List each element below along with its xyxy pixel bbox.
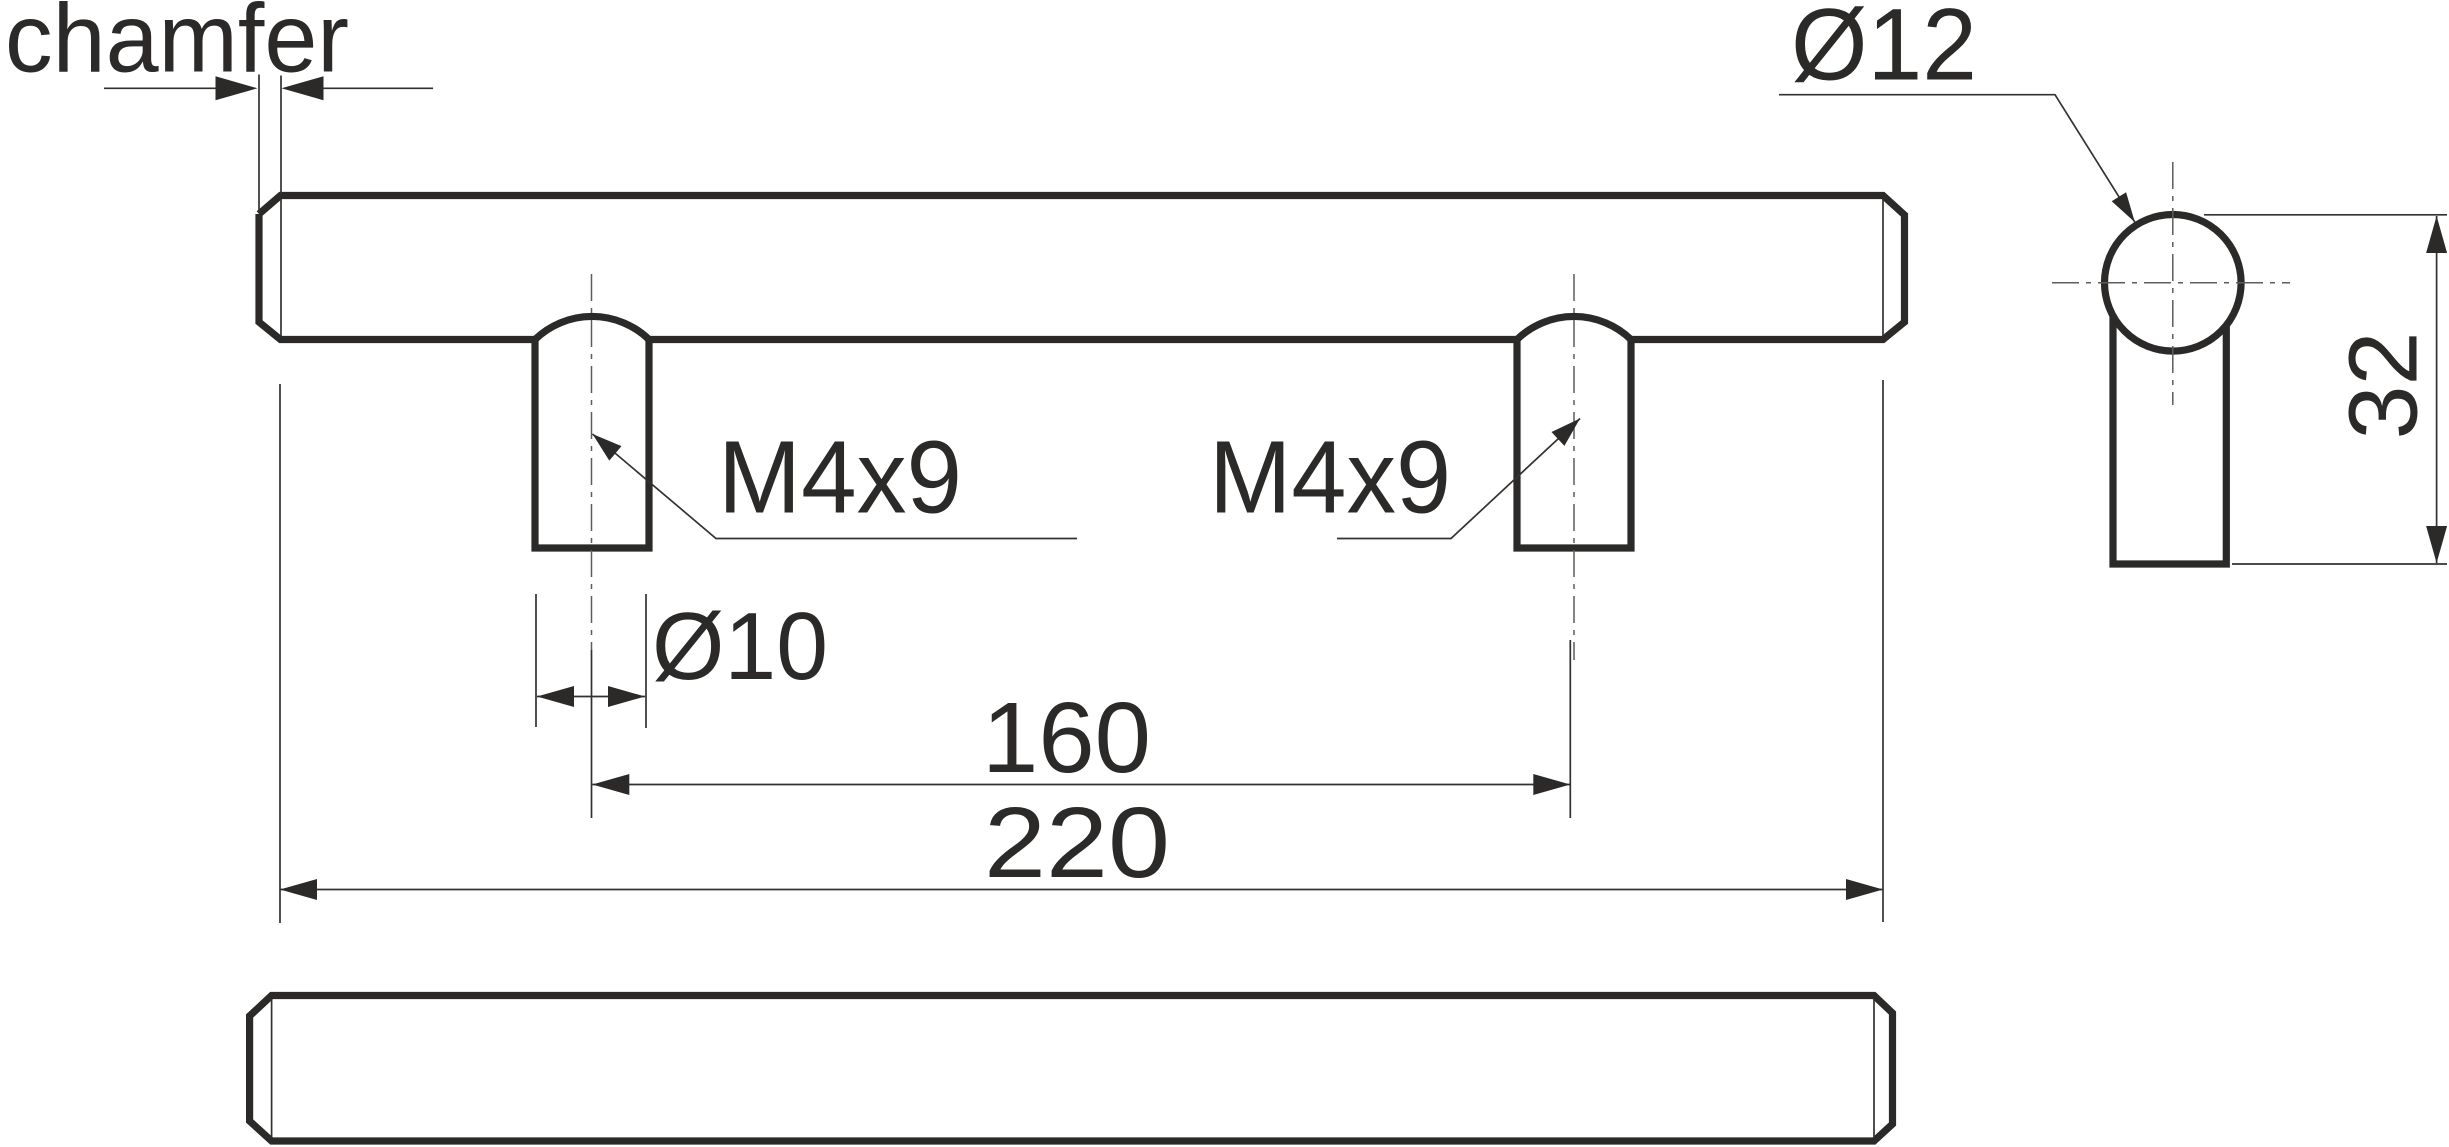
svg-text:Ø12: Ø12 xyxy=(1791,0,1977,102)
svg-text:Ø10: Ø10 xyxy=(652,593,828,700)
svg-text:32: 32 xyxy=(2329,332,2438,440)
svg-text:160: 160 xyxy=(982,682,1151,794)
svg-text:M4x9: M4x9 xyxy=(718,420,962,535)
svg-text:M4x9: M4x9 xyxy=(1209,420,1451,535)
svg-text:220: 220 xyxy=(984,787,1170,899)
svg-text:chamfer: chamfer xyxy=(5,0,349,93)
